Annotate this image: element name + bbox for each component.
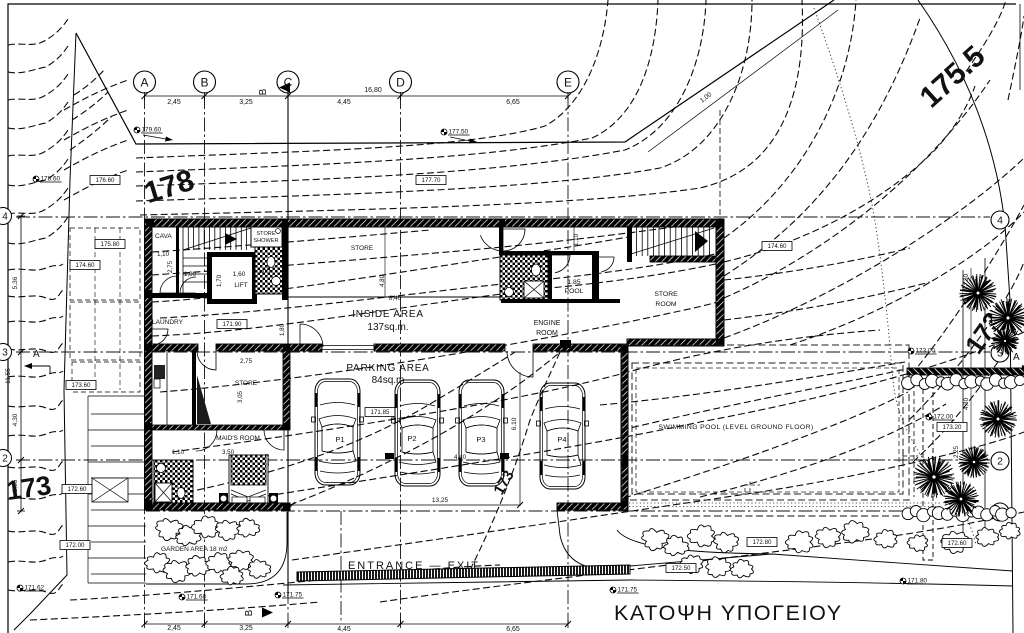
svg-text:1,10: 1,10	[172, 449, 185, 456]
svg-text:GARDEN AREA 18 m2: GARDEN AREA 18 m2	[161, 546, 228, 553]
svg-text:P4: P4	[557, 435, 566, 444]
svg-text:4,45: 4,45	[337, 626, 351, 633]
svg-text:ENGINE: ENGINE	[534, 320, 561, 327]
svg-text:137sq.m.: 137sq.m.	[367, 322, 408, 333]
svg-text:6,65: 6,65	[506, 626, 520, 633]
svg-text:P1: P1	[335, 435, 344, 444]
svg-text:1,10: 1,10	[157, 251, 170, 258]
svg-text:173.60: 173.60	[72, 382, 91, 389]
svg-text:A: A	[140, 76, 148, 90]
svg-text:8,40: 8,40	[389, 295, 402, 302]
svg-text:B: B	[244, 609, 255, 616]
svg-text:171.90: 171.90	[223, 321, 242, 328]
svg-text:172.80: 172.80	[753, 539, 772, 546]
svg-text:ENTRANCE — EXIT: ENTRANCE — EXIT	[348, 560, 480, 572]
svg-text:16,80: 16,80	[364, 87, 382, 94]
svg-text:LIFT: LIFT	[234, 282, 247, 289]
svg-text:84sq.m: 84sq.m	[372, 375, 405, 386]
svg-text:175.80: 175.80	[101, 241, 120, 248]
svg-text:171.75: 171.75	[283, 592, 303, 599]
svg-text:MAID'S ROOM: MAID'S ROOM	[216, 435, 260, 442]
svg-text:E: E	[564, 76, 572, 90]
svg-text:172.60: 172.60	[68, 486, 87, 493]
svg-text:1,00: 1,00	[258, 268, 271, 275]
svg-text:PARKING AREA: PARKING AREA	[346, 363, 429, 374]
svg-text:ΚΑΤΟΨΗ ΥΠΟΓΕΙΟΥ: ΚΑΤΟΨΗ ΥΠΟΓΕΙΟΥ	[614, 601, 843, 625]
svg-text:176.60: 176.60	[96, 177, 115, 184]
svg-text:4,30: 4,30	[963, 397, 970, 410]
svg-text:SWIMMING POOL (LEVEL GROUND FL: SWIMMING POOL (LEVEL GROUND FLOOR)	[658, 424, 813, 431]
svg-text:2: 2	[997, 456, 1003, 468]
svg-text:6,65: 6,65	[506, 99, 520, 106]
svg-text:A: A	[1013, 352, 1020, 363]
svg-text:STORE: STORE	[256, 231, 275, 237]
svg-text:STORE: STORE	[654, 291, 678, 298]
svg-text:174.60: 174.60	[768, 243, 787, 250]
svg-text:CAVA: CAVA	[155, 233, 172, 240]
svg-text:172.50: 172.50	[672, 565, 691, 572]
svg-text:2: 2	[2, 454, 8, 465]
svg-text:13,25: 13,25	[432, 497, 449, 504]
svg-text:3,05: 3,05	[237, 390, 244, 403]
svg-text:171.68: 171.68	[187, 594, 207, 601]
svg-text:A: A	[33, 349, 40, 360]
svg-text:4: 4	[2, 212, 8, 223]
svg-text:11,55: 11,55	[5, 368, 12, 384]
svg-text:P2: P2	[407, 434, 416, 443]
svg-text:2,45: 2,45	[167, 99, 181, 106]
svg-text:STORE: STORE	[235, 380, 258, 387]
svg-text:177.70: 177.70	[422, 177, 441, 184]
svg-text:B: B	[258, 88, 269, 95]
svg-text:3: 3	[2, 348, 8, 359]
svg-text:173.00: 173.00	[916, 348, 936, 355]
svg-text:2,25: 2,25	[953, 445, 960, 458]
svg-text:LAUNDRY: LAUNDRY	[152, 319, 184, 326]
svg-text:INSIDE AREA: INSIDE AREA	[352, 309, 424, 320]
svg-text:171.80: 171.80	[908, 578, 928, 585]
svg-text:4,80: 4,80	[379, 274, 386, 287]
svg-text:2,45: 2,45	[167, 625, 181, 632]
svg-text:3,25: 3,25	[239, 625, 253, 632]
svg-text:ROOM: ROOM	[655, 301, 676, 308]
svg-text:174.60: 174.60	[76, 262, 95, 269]
svg-text:D: D	[396, 76, 405, 90]
svg-text:178.60: 178.60	[41, 176, 61, 183]
svg-text:171.85: 171.85	[371, 409, 390, 416]
svg-text:173: 173	[4, 470, 53, 506]
svg-text:1.85: 1.85	[567, 279, 580, 286]
svg-text:4,40: 4,40	[454, 454, 467, 461]
svg-text:172.60: 172.60	[948, 540, 967, 547]
svg-text:5,36: 5,36	[12, 276, 19, 289]
svg-text:STORE: STORE	[351, 245, 374, 252]
svg-text:179.60: 179.60	[142, 127, 162, 134]
svg-text:177.50: 177.50	[449, 129, 469, 136]
svg-text:172.00: 172.00	[934, 414, 954, 421]
svg-text:P3: P3	[476, 435, 485, 444]
svg-text:6,10: 6,10	[511, 417, 518, 430]
svg-text:SHOWER: SHOWER	[253, 238, 278, 244]
svg-text:B: B	[200, 76, 208, 90]
svg-text:2,75: 2,75	[240, 358, 253, 365]
svg-text:4,45: 4,45	[337, 99, 351, 106]
svg-text:172.00: 172.00	[66, 542, 85, 549]
svg-text:1,80: 1,80	[279, 323, 286, 336]
svg-text:171.75: 171.75	[618, 587, 638, 594]
svg-text:4: 4	[997, 215, 1003, 227]
svg-text:171.62: 171.62	[25, 585, 45, 592]
svg-text:POOL: POOL	[565, 288, 584, 295]
svg-text:3,25: 3,25	[239, 99, 253, 106]
svg-text:173.20: 173.20	[943, 424, 962, 431]
svg-text:2,75: 2,75	[167, 260, 174, 273]
svg-text:1,60: 1,60	[233, 271, 246, 278]
svg-text:1,70: 1,70	[216, 274, 223, 287]
svg-text:4,30: 4,30	[12, 413, 19, 426]
svg-text:ROOM: ROOM	[536, 330, 558, 337]
